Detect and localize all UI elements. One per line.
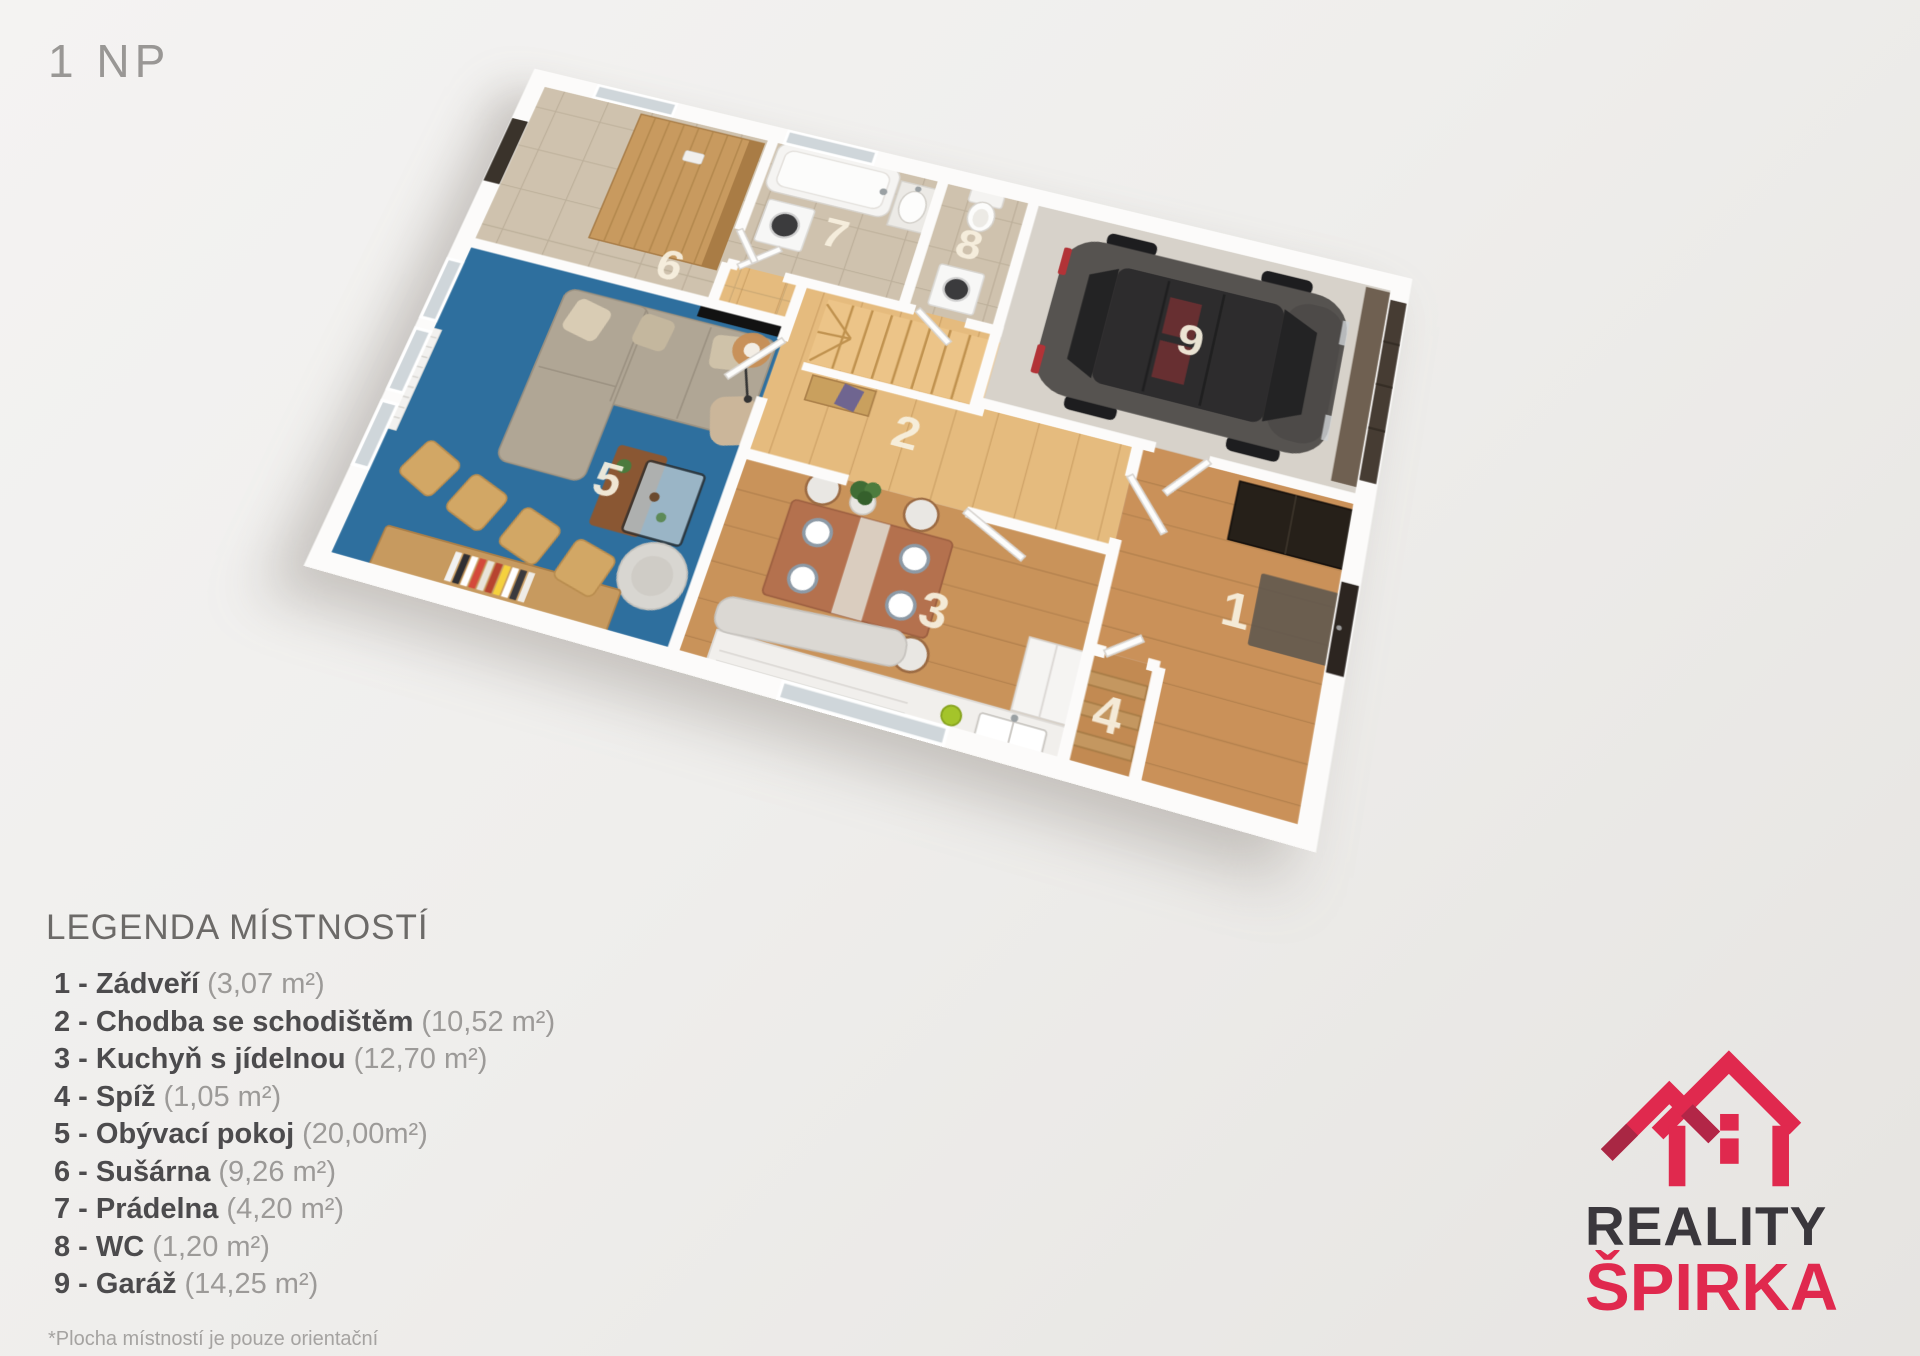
floor-plan-3d: 1 2 3 4 5 6 7 8 9 xyxy=(243,33,1456,921)
room-legend: LEGENDA MÍSTNOSTÍ 1 - Zádveří(3,07 m²) 2… xyxy=(46,908,606,1351)
legend-item: 7 - Prádelna(4,20 m²) xyxy=(46,1191,606,1229)
logo-text-reality: REALITY xyxy=(1585,1198,1905,1254)
legend-item: 8 - WC(1,20 m²) xyxy=(46,1229,606,1267)
logo-text-spirka: ŠPIRKA xyxy=(1585,1254,1905,1321)
legend-note: *Plocha místností je pouze orientační xyxy=(46,1328,606,1351)
floor-label: 1 NP xyxy=(48,34,170,88)
house-logo-icon xyxy=(1595,1038,1810,1188)
logo-window-top xyxy=(1720,1114,1739,1131)
legend-item: 5 - Obývací pokoj(20,00m²) xyxy=(46,1116,606,1154)
legend-item: 3 - Kuchyň s jídelnou(12,70 m²) xyxy=(46,1041,606,1079)
legend-item: 6 - Sušárna(9,26 m²) xyxy=(46,1154,606,1192)
roof-overlap-shadow xyxy=(1687,1110,1714,1137)
legend-item: 9 - Garáž(14,25 m²) xyxy=(46,1266,606,1304)
legend-item: 2 - Chodba se schodištěm(10,52 m²) xyxy=(46,1004,606,1042)
logo-window-bottom xyxy=(1720,1138,1739,1163)
legend-title: LEGENDA MÍSTNOSTÍ xyxy=(46,908,606,948)
small-roof-shadow xyxy=(1607,1130,1632,1155)
brand-logo: REALITY ŠPIRKA xyxy=(1585,1038,1905,1321)
floor-plan-svg: 1 2 3 4 5 6 7 8 9 xyxy=(243,33,1456,921)
legend-item: 4 - Spíž(1,05 m²) xyxy=(46,1079,606,1117)
legend-item: 1 - Zádveří(3,07 m²) xyxy=(46,966,606,1004)
